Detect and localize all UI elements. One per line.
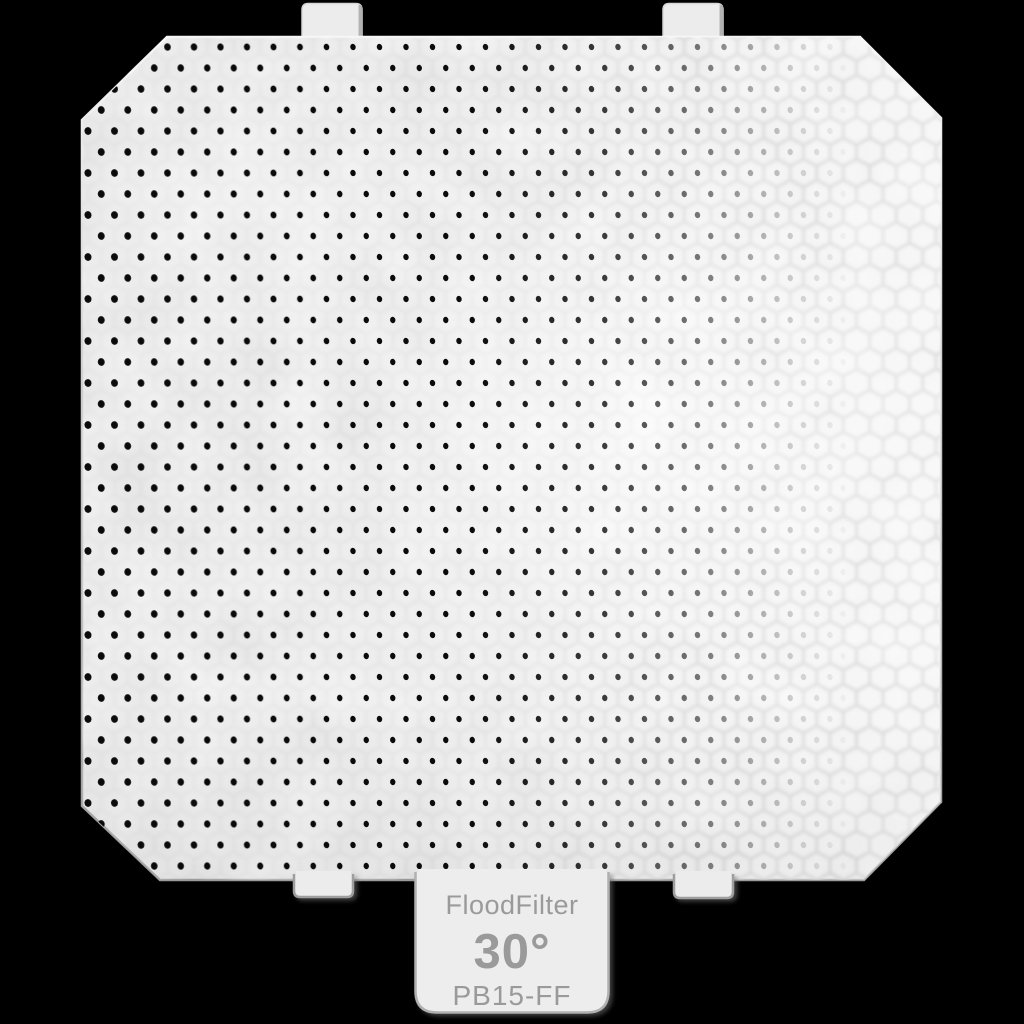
floodfilter-product-image: FloodFilter 30° PB15-FF xyxy=(0,0,1024,1024)
honeycomb-dots-left-layer xyxy=(60,20,980,900)
label-tab-join-cover xyxy=(418,869,606,878)
tab-join-cover xyxy=(676,871,731,878)
product-name-label: FloodFilter xyxy=(445,890,578,920)
model-number-label: PB15-FF xyxy=(452,980,571,1011)
tab-join-cover xyxy=(296,871,351,878)
honeycomb-grid-texture xyxy=(50,20,980,900)
beam-angle-label: 30° xyxy=(473,925,550,979)
